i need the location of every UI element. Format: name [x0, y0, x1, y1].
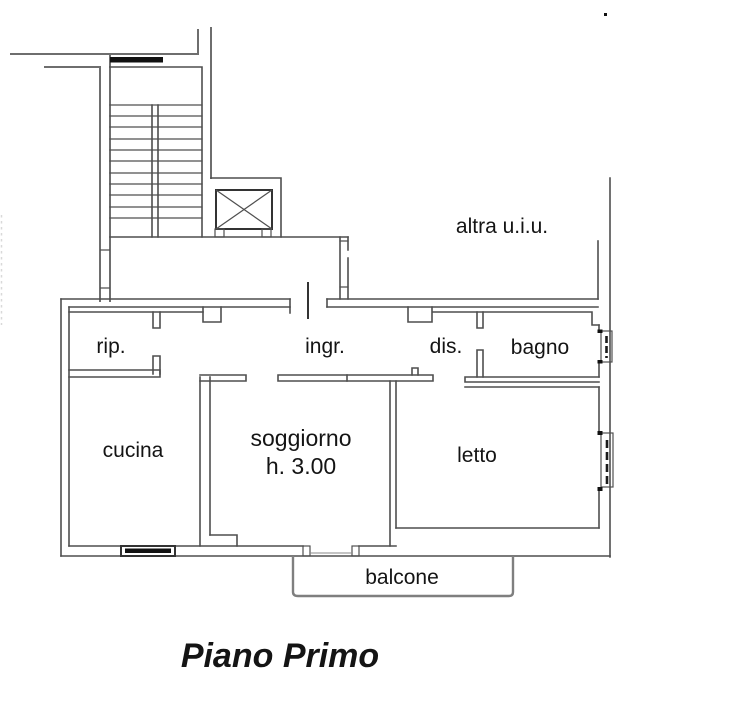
stair-stringer [152, 105, 158, 237]
room-label-hallway: dis. [430, 335, 463, 358]
plan-title: Piano Primo [181, 637, 379, 675]
floor-plan-page: rip. ingr. dis. bagno cucina soggiorno h… [0, 0, 738, 702]
stair-landing-door-bar [110, 57, 163, 63]
building-cut-walls [11, 28, 211, 301]
room-label-other-unit: altra u.i.u. [456, 215, 548, 238]
room-label-kitchen: cucina [103, 439, 164, 462]
elevator-jamb-left [215, 229, 224, 237]
room-label-storage: rip. [96, 335, 125, 358]
elevator-jamb-right [262, 229, 271, 237]
livingroom-bedroom-wall [390, 381, 396, 546]
room-label-livingroom: soggiorno [250, 425, 351, 451]
landing-right-wall [340, 237, 348, 299]
balcony-door [303, 546, 359, 556]
elevator-x-mark [216, 190, 272, 229]
livingroom-top-wall [200, 368, 433, 381]
elevator [211, 178, 281, 237]
floor-plan: rip. ingr. dis. bagno cucina soggiorno h… [0, 0, 738, 702]
room-label-bathroom: bagno [511, 336, 569, 359]
room-label-livingroom-height: h. 3.00 [266, 453, 336, 479]
kitchen-window [121, 546, 175, 556]
apartment-top-wall [61, 241, 599, 325]
stair-treads [110, 105, 202, 218]
room-label-balcony: balcone [365, 566, 439, 589]
stray-dot [604, 13, 607, 16]
kitchen-livingroom-wall [200, 377, 210, 546]
room-label-bedroom: letto [457, 444, 497, 467]
staircase [110, 67, 348, 237]
room-label-entrance: ingr. [305, 335, 345, 358]
